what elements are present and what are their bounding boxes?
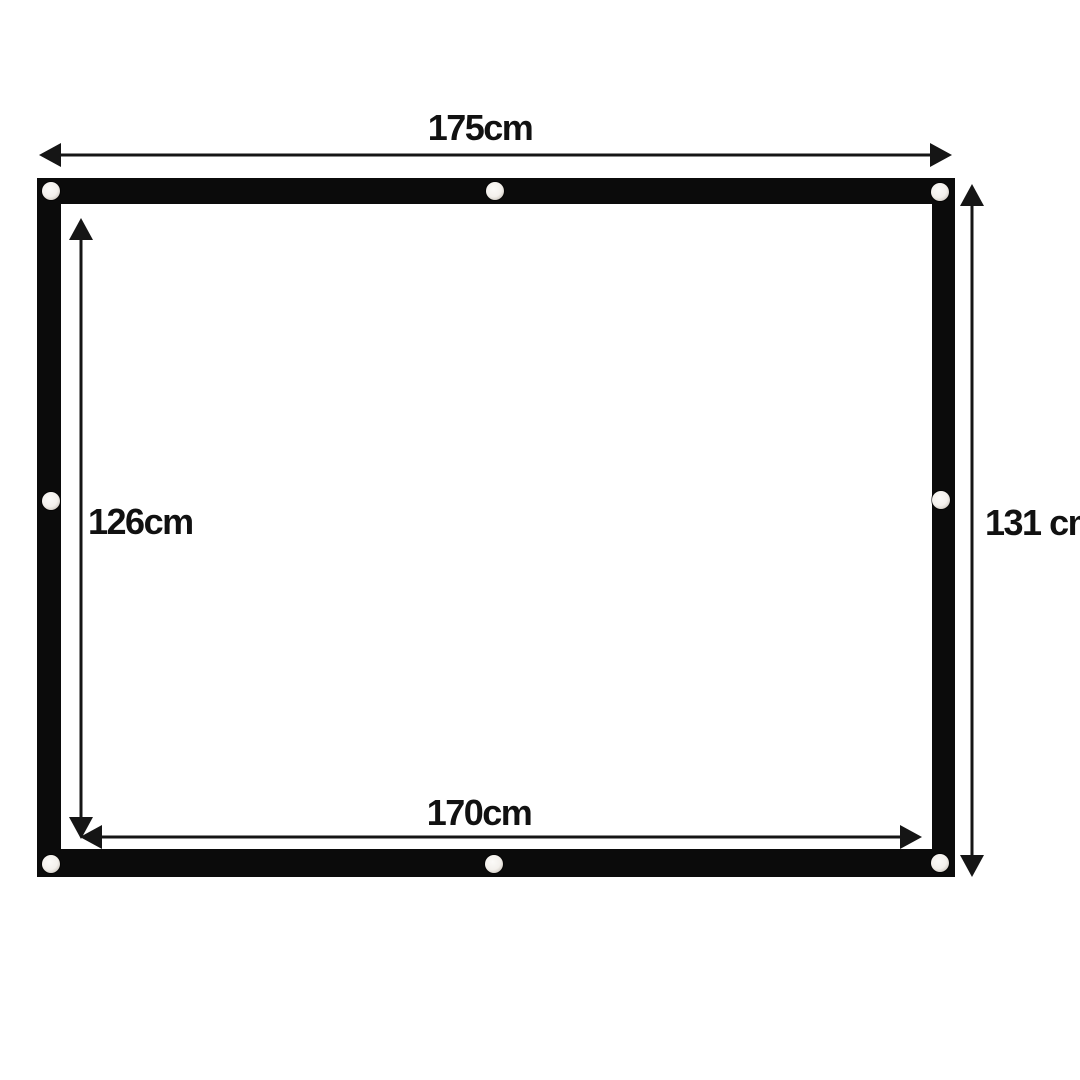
dimension-diagram: 175cm 131 cm 126cm 170cm — [0, 0, 1080, 1080]
arrowhead-left-icon — [39, 143, 61, 167]
inner-height-label: 126cm — [88, 504, 193, 540]
arrowhead-up-icon — [69, 218, 93, 240]
outer-height-label: 131 cm — [985, 505, 1080, 541]
arrowhead-right-icon — [900, 825, 922, 849]
outer-height-arrow — [960, 184, 984, 877]
arrowhead-down-icon — [960, 855, 984, 877]
arrowhead-up-icon — [960, 184, 984, 206]
outer-width-label: 175cm — [428, 110, 533, 146]
arrowhead-right-icon — [930, 143, 952, 167]
inner-width-label: 170cm — [427, 795, 532, 831]
